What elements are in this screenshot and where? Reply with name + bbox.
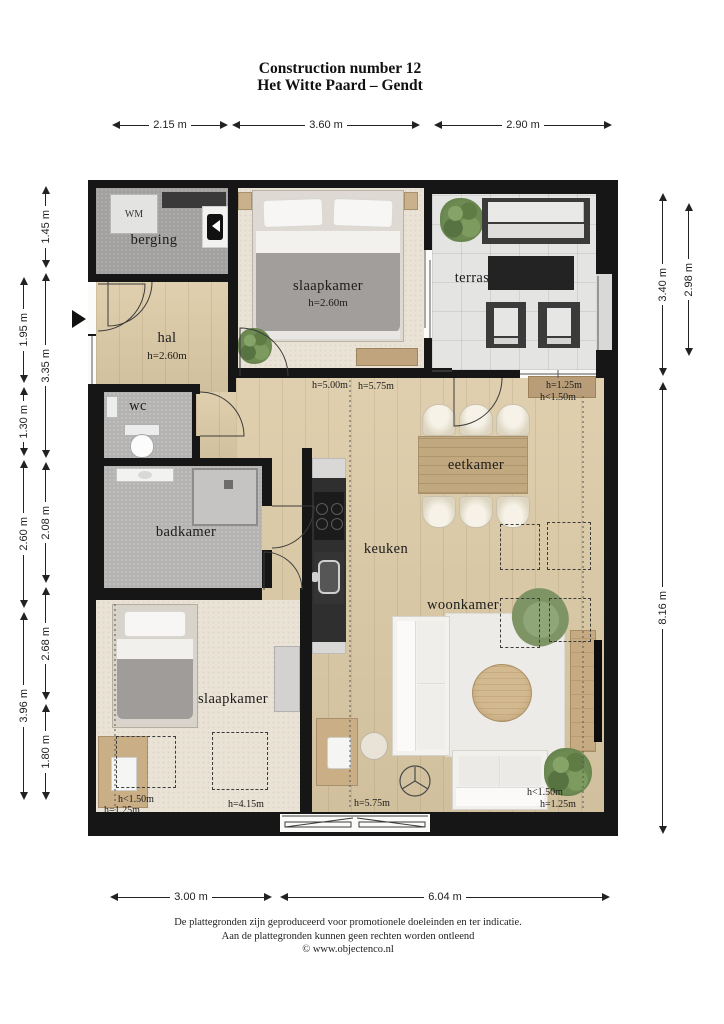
floorplan-page: Construction number 12 Het Witte Paard –… <box>0 0 724 1024</box>
garden-door-lines <box>282 816 428 827</box>
room-label-eetkamer: eetkamer <box>448 457 504 474</box>
footer-copyright: © www.objectenco.nl <box>0 943 696 957</box>
room-label-slaapkamer-top: slaapkamer <box>293 278 363 295</box>
room-label-wc: wc <box>129 398 147 415</box>
height-annotation: h<1.50m <box>527 787 563 798</box>
dim-right-inner-2: 8.16 m <box>655 382 670 834</box>
door-swing-arcs <box>98 282 502 590</box>
dim-left-inner-4: 2.68 m <box>38 587 53 700</box>
window-lines <box>92 250 598 384</box>
height-annotation: h<1.50m <box>118 794 154 805</box>
dim-left-inner-2: 3.35 m <box>38 273 53 458</box>
dim-bottom-1: 3.00 m <box>110 890 272 904</box>
badkamer-door-swing <box>272 506 314 548</box>
dim-left-outer-3: 2.60 m <box>16 460 31 608</box>
dim-top-3: 2.90 m <box>434 118 612 132</box>
height-zone-dotted-lines <box>115 380 583 810</box>
floorplan-canvas: WM <box>88 180 618 836</box>
room-label-terras: terras <box>455 270 490 287</box>
ceiling-fan-icon <box>400 766 430 796</box>
height-annotation: h=4.15m <box>228 799 264 810</box>
berging-door-swing <box>108 282 152 326</box>
wc-door-swing <box>200 392 244 436</box>
height-annotation: h=1.25m <box>546 380 582 391</box>
dim-top-1: 2.15 m <box>112 118 228 132</box>
page-title: Construction number 12 <box>0 60 680 77</box>
height-annotation: h=1.25m <box>540 799 576 810</box>
room-label-woonkamer: woonkamer <box>427 597 499 614</box>
entrance-arrow-icon <box>72 310 86 328</box>
height-annotation: h=5.75m <box>358 381 394 392</box>
dim-left-outer-2: 1.30 m <box>16 387 31 456</box>
fan-blade <box>402 781 415 789</box>
footer-line-1: De plattegronden zijn geproduceerd voor … <box>0 916 696 930</box>
room-height-hal: h=2.60m <box>147 350 187 362</box>
height-annotation: h=1.25m <box>104 805 140 816</box>
height-annotation: h=5.00m <box>312 380 348 391</box>
dim-bottom-2: 6.04 m <box>280 890 610 904</box>
dim-left-inner-1: 1.45 m <box>38 186 53 268</box>
dim-top-2: 3.60 m <box>232 118 420 132</box>
page-subtitle: Het Witte Paard – Gendt <box>0 77 680 94</box>
room-label-slaapkamer-bottom: slaapkamer <box>198 691 268 708</box>
dim-left-inner-5: 1.80 m <box>38 704 53 800</box>
slaapkamer-bottom-door-swing <box>264 552 302 590</box>
room-label-badkamer: badkamer <box>156 524 216 541</box>
room-label-berging: berging <box>131 232 178 249</box>
room-height-slaapkamer-top: h=2.60m <box>308 297 348 309</box>
height-annotation: h=5.75m <box>354 798 390 809</box>
dim-left-inner-3: 2.08 m <box>38 462 53 583</box>
dim-right-outer-1: 2.98 m <box>681 203 696 356</box>
footer-line-2: Aan de plattegronden kunnen geen rechten… <box>0 930 696 944</box>
title-block: Construction number 12 Het Witte Paard –… <box>0 60 680 94</box>
slaapkamer-top-door-swing <box>240 328 288 376</box>
dim-left-outer-1: 1.95 m <box>16 277 31 383</box>
fan-blade <box>415 781 428 789</box>
footer-disclaimer: De plattegronden zijn geproduceerd voor … <box>0 916 696 957</box>
terras-door-swing <box>454 378 502 426</box>
room-label-hal: hal <box>158 330 177 347</box>
height-annotation: h<1.50m <box>540 392 576 403</box>
room-label-keuken: keuken <box>364 541 408 558</box>
dim-right-inner-1: 3.40 m <box>655 193 670 376</box>
dim-left-outer-4: 3.96 m <box>16 612 31 800</box>
